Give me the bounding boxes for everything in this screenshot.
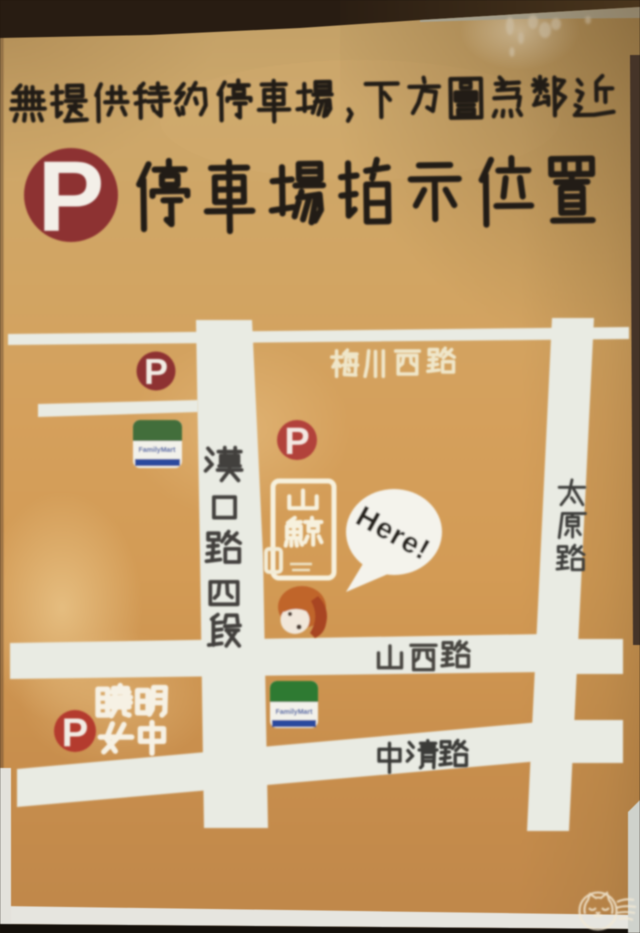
svg-text:FamilyMart: FamilyMart: [139, 447, 177, 454]
svg-text:P: P: [144, 351, 168, 392]
svg-text:FamilyMart: FamilyMart: [276, 709, 314, 716]
svg-text:P: P: [284, 421, 309, 463]
svg-text:P: P: [38, 141, 105, 253]
svg-text:P: P: [62, 711, 89, 755]
